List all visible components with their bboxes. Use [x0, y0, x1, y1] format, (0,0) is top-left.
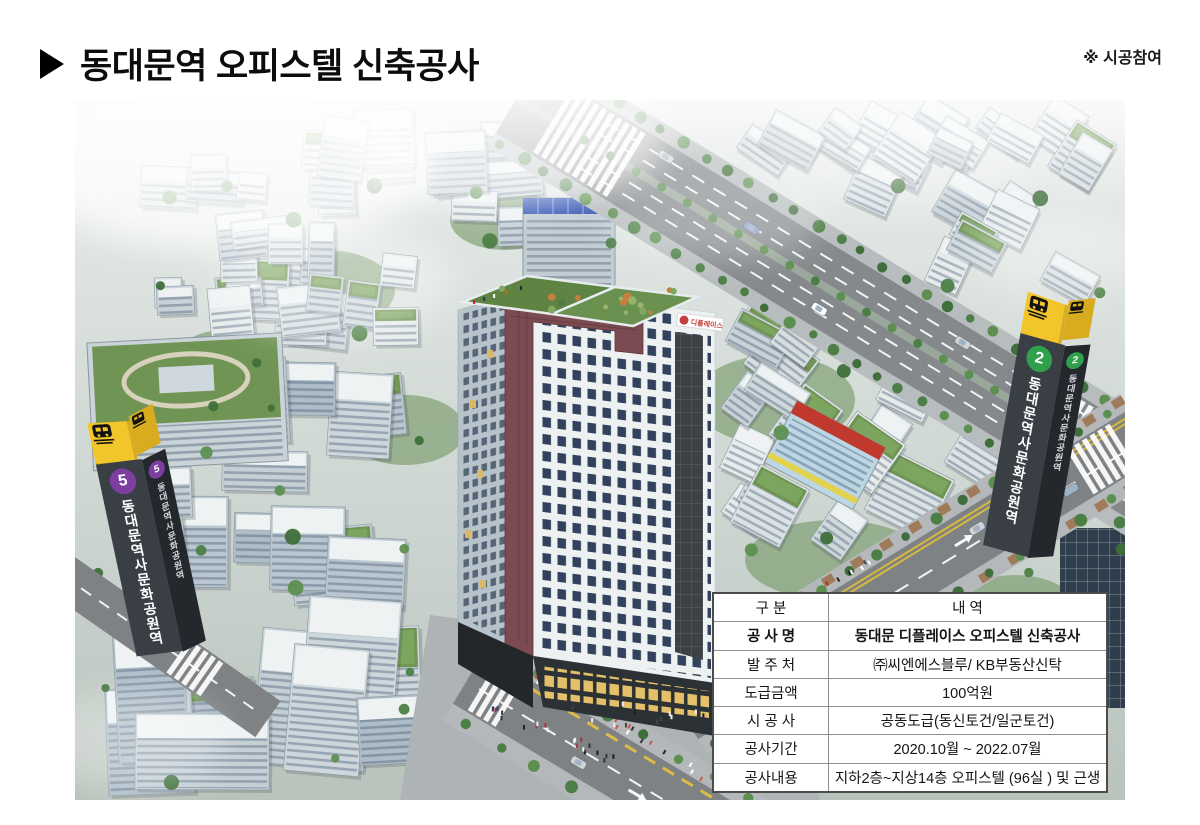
table-value-cell: 공동도급(동신토건/일군토건): [829, 707, 1108, 735]
project-spec-table: 구 분 내 역 공 사 명동대문 디플레이스 오피스텔 신축공사발 주 처㈜씨엔…: [712, 592, 1108, 793]
slide-title: 동대문역 오피스텔 신축공사: [80, 38, 479, 89]
table-label-cell: 공사내용: [713, 763, 829, 792]
title-arrow-icon: [40, 49, 64, 79]
table-header-row: 구 분 내 역: [713, 593, 1107, 622]
construction-participation-note: ※ 시공참여: [1083, 44, 1162, 68]
table-header-label: 구 분: [713, 593, 829, 622]
presentation-slide: 동대문역 오피스텔 신축공사 ※ 시공참여: [0, 0, 1200, 825]
line2-badge: 2: [1065, 352, 1085, 370]
table-row: 공 사 명동대문 디플레이스 오피스텔 신축공사: [713, 622, 1107, 650]
table-label-cell: 시 공 사: [713, 707, 829, 735]
line5-badge: 5: [147, 457, 166, 481]
table-value-cell: 지하2층~지상14층 오피스텔 (96실 ) 및 근생: [829, 763, 1108, 792]
table-value-cell: ㈜씨엔에스블루/ KB부동산신탁: [829, 650, 1108, 678]
line2-badge: 2: [1024, 343, 1054, 375]
table-label-cell: 발 주 처: [713, 650, 829, 678]
table-label-cell: 공사기간: [713, 735, 829, 763]
building-block: [156, 285, 198, 318]
aerial-rendering-image: 디플레이스 5 동대문역사문화공원역 5 동대문역사문화공원역: [75, 100, 1125, 800]
table-label-cell: 도급금액: [713, 678, 829, 706]
table-header-value: 내 역: [829, 593, 1108, 622]
slide-header: 동대문역 오피스텔 신축공사: [40, 38, 479, 89]
table-row: 시 공 사공동도급(동신토건/일군토건): [713, 707, 1107, 735]
table-row: 도급금액100억원: [713, 678, 1107, 706]
table-row: 발 주 처㈜씨엔에스블루/ KB부동산신탁: [713, 650, 1107, 678]
table-value-cell: 100억원: [829, 678, 1108, 706]
line5-badge: 5: [107, 467, 138, 496]
table-label-cell: 공 사 명: [713, 622, 829, 650]
table-row: 공사내용지하2층~지상14층 오피스텔 (96실 ) 및 근생: [713, 763, 1107, 792]
table-value-cell: 동대문 디플레이스 오피스텔 신축공사: [829, 622, 1108, 650]
table-value-cell: 2020.10월 ~ 2022.07월: [829, 735, 1108, 763]
table-row: 공사기간2020.10월 ~ 2022.07월: [713, 735, 1107, 763]
